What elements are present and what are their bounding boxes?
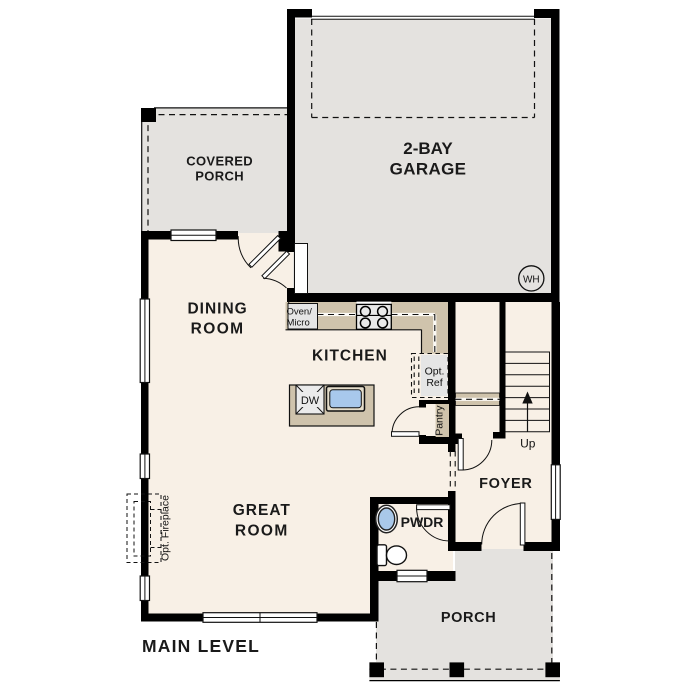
svg-text:ROOM: ROOM [235,523,289,540]
svg-text:PWDR: PWDR [401,514,444,530]
svg-text:KITCHEN: KITCHEN [312,348,388,365]
svg-text:DW: DW [301,395,320,407]
svg-text:Opt.: Opt. [425,366,445,378]
svg-text:Up: Up [520,436,536,450]
svg-text:GREAT: GREAT [233,502,291,519]
svg-text:Opt. Fireplace: Opt. Fireplace [160,495,172,561]
svg-text:Ref: Ref [426,377,442,389]
svg-text:Micro: Micro [287,318,310,329]
svg-text:2-BAY: 2-BAY [403,139,453,158]
svg-text:COVERED: COVERED [186,153,253,168]
svg-text:FOYER: FOYER [479,476,532,492]
svg-text:Oven/: Oven/ [287,307,313,318]
svg-text:ROOM: ROOM [191,320,245,337]
svg-text:MAIN LEVEL: MAIN LEVEL [142,636,260,656]
svg-text:WH: WH [523,274,540,285]
svg-text:Pantry: Pantry [433,405,445,436]
svg-text:DINING: DINING [187,301,247,318]
svg-text:GARAGE: GARAGE [390,159,467,178]
svg-text:PORCH: PORCH [441,610,496,626]
svg-text:PORCH: PORCH [195,169,244,184]
